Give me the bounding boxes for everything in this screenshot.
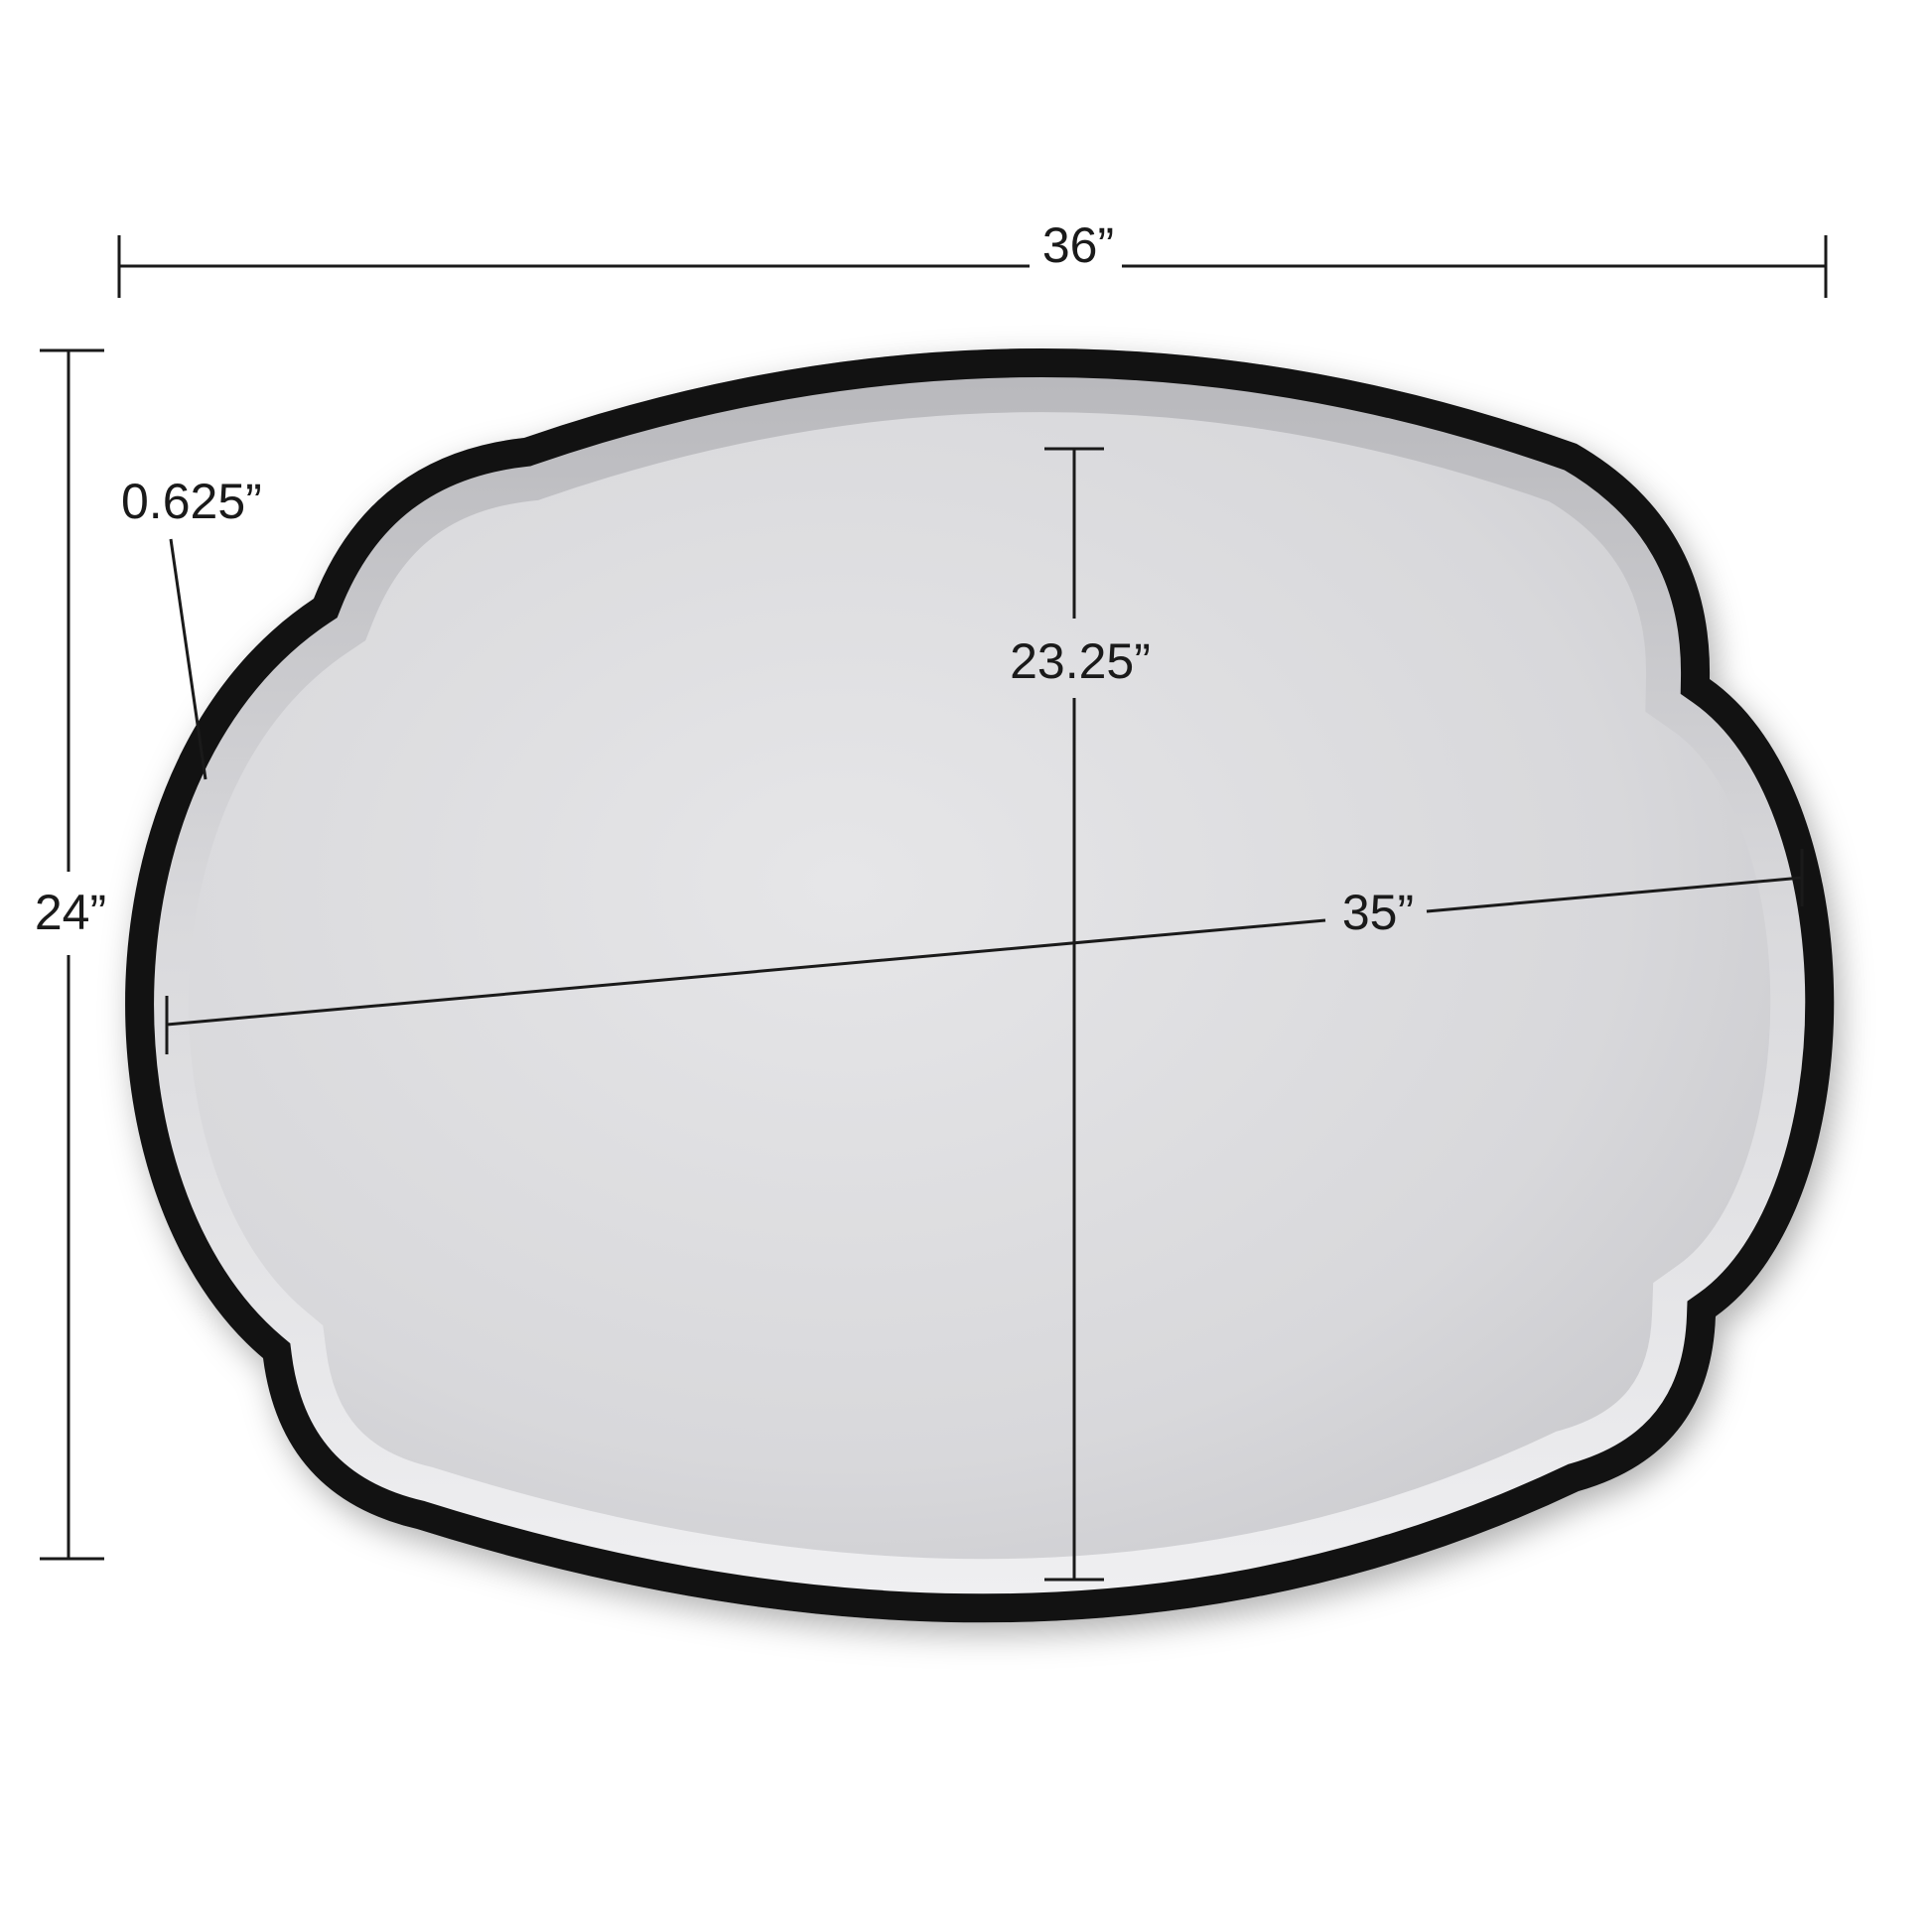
mirror	[125, 348, 1834, 1622]
product-dimension-diagram: 36” 24” 0.625” 23.25” 35”	[0, 0, 1932, 1932]
glass-width-label: 35”	[1342, 885, 1414, 940]
overall-width-label: 36”	[1042, 217, 1114, 273]
glass-height-label: 23.25”	[1010, 633, 1151, 689]
frame-width-label: 0.625”	[121, 474, 262, 529]
mirror-dimensions-svg: 36” 24” 0.625” 23.25” 35”	[0, 0, 1932, 1932]
overall-width-dimension-line	[119, 235, 1826, 298]
overall-height-label: 24”	[35, 885, 106, 940]
overall-height-dimension-line	[40, 350, 104, 1559]
